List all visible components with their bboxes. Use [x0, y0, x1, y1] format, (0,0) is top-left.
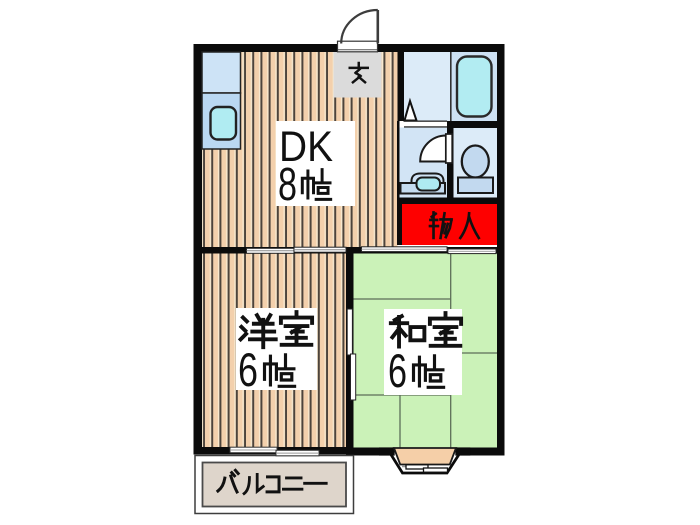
svg-text:6: 6	[388, 344, 407, 397]
svg-text:6: 6	[238, 343, 258, 396]
svg-text:8: 8	[278, 158, 297, 210]
